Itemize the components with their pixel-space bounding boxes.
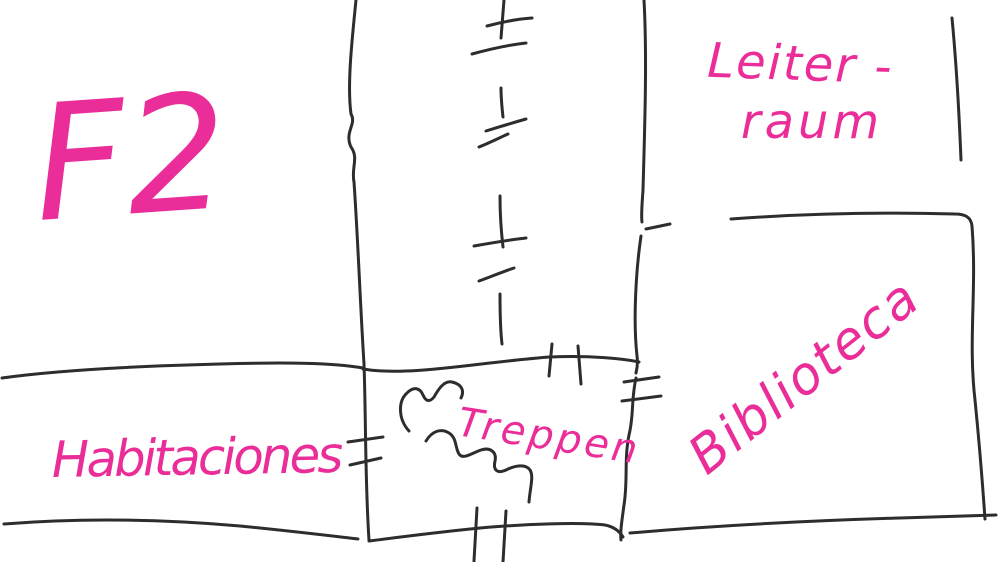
label-leiterraum-line1: Leiter - — [706, 33, 894, 95]
treppen-biblioteca-door-tick — [624, 377, 659, 382]
corridor-right-wall-lower — [635, 236, 641, 373]
corridor-right-wall — [642, 0, 646, 222]
treppen-bottom-door-tick — [503, 511, 506, 562]
centerline-tick — [474, 238, 526, 246]
centerline-dash — [500, 294, 502, 344]
treppen-top-door-tick — [549, 344, 552, 376]
biblioteca-right-wall — [972, 226, 985, 519]
leiterraum-right-wall — [952, 18, 961, 160]
label-treppen: Treppen — [454, 399, 643, 473]
centerline-dash — [501, 88, 503, 117]
habitaciones-treppen-shared-wall — [364, 364, 369, 540]
centerline-dash — [501, 0, 504, 38]
habitaciones-bottom-wall — [4, 520, 358, 539]
biblioteca-bottom-wall — [630, 515, 996, 533]
treppen-top-door-tick — [578, 346, 581, 384]
treppen-biblioteca-door-tick — [622, 396, 661, 401]
leiterraum-bottom-wall — [731, 213, 972, 226]
label-floor: F2 — [28, 58, 234, 258]
centerline-tick — [472, 43, 526, 54]
label-leiterraum-line2: raum — [741, 94, 883, 150]
corridor-centerline — [472, 0, 532, 344]
treppen-bottom-door-tick — [474, 508, 477, 561]
centerline-tick — [479, 268, 514, 281]
treppen-top-wall — [363, 356, 639, 371]
label-habitaciones: Habitaciones — [51, 426, 343, 489]
corridor-left-wall — [349, 0, 364, 364]
corridor-biblioteca-door-tick — [646, 224, 670, 229]
sketch-drawing: F2 Leiter - raum Biblioteca Habitaciones… — [0, 0, 1000, 562]
centerline-dash — [500, 196, 503, 247]
habitaciones-top-wall — [2, 363, 363, 378]
centerline-tick — [487, 18, 532, 26]
centerline-tick — [486, 119, 526, 131]
marker-labels: F2 Leiter - raum Biblioteca Habitaciones… — [28, 33, 932, 489]
treppen-bottom-wall — [369, 524, 623, 541]
label-biblioteca: Biblioteca — [677, 267, 931, 486]
centerline-tick — [479, 134, 508, 147]
floorplan-sketch: F2 Leiter - raum Biblioteca Habitaciones… — [0, 0, 1000, 562]
stairs-squiggle-upper — [400, 382, 462, 431]
